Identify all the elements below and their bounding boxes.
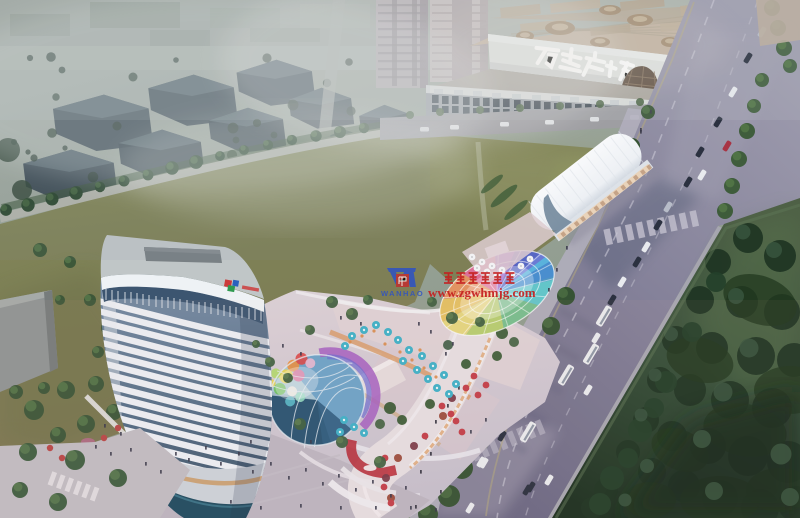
svg-text:www.zgwhmjg.com: www.zgwhmjg.com (428, 285, 536, 300)
svg-text:WANHAO: WANHAO (381, 289, 424, 298)
